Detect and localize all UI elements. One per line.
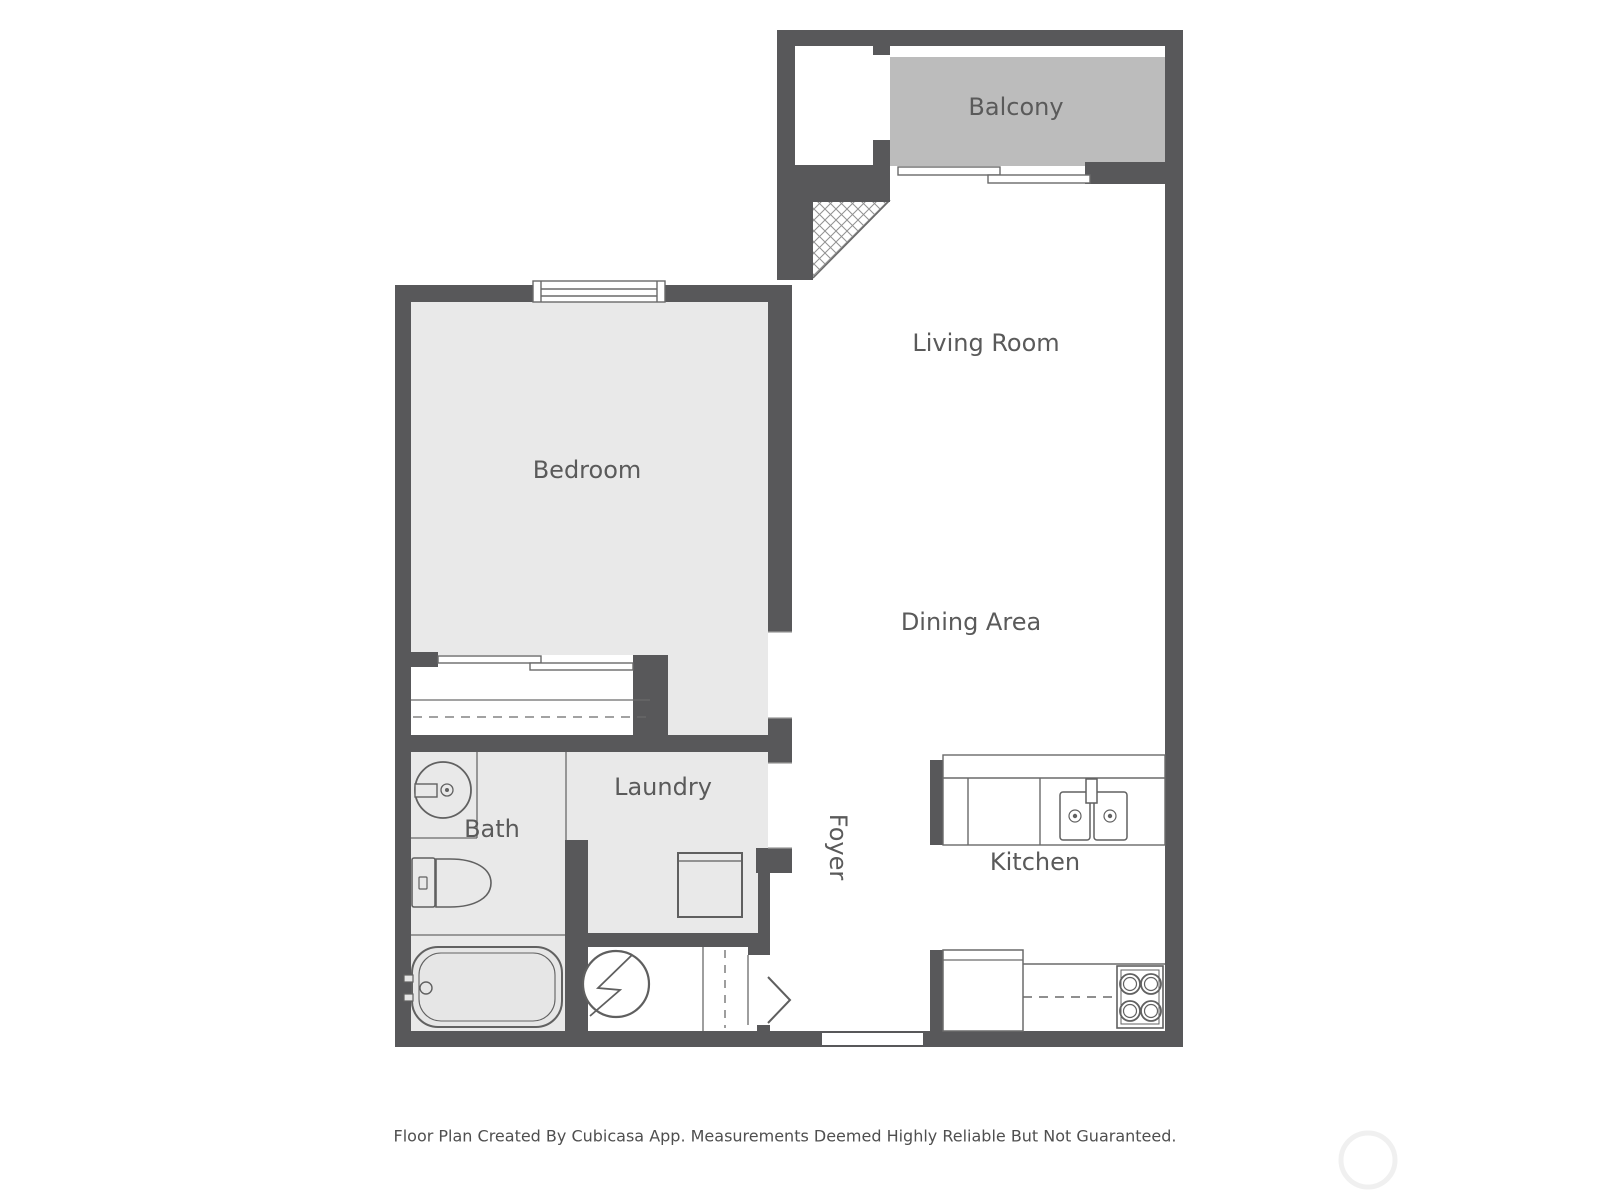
wall-segment (633, 655, 668, 735)
refrigerator (943, 950, 1023, 1031)
room-label-bedroom: Bedroom (533, 456, 642, 484)
wall-segment (1165, 30, 1183, 1047)
wall-segment (777, 165, 890, 202)
watermark-circle (1341, 1133, 1395, 1187)
kitchen-counter-top (943, 755, 1165, 845)
room-label-kitchen: Kitchen (990, 848, 1080, 876)
foyer-closet (703, 947, 748, 1031)
bedroom-window (533, 281, 665, 302)
room-label-bath: Bath (464, 815, 520, 843)
floor-plan-page: Balcony Living Room Bedroom Dining Area … (0, 0, 1600, 1200)
wall-segment (768, 302, 792, 632)
wall-segment (777, 30, 795, 170)
room-label-balcony: Balcony (968, 93, 1063, 121)
wall-segment (395, 285, 533, 302)
floor-plan-canvas: Balcony Living Room Bedroom Dining Area … (0, 0, 1600, 1200)
wall-segment (873, 46, 890, 55)
bathroom-sink (415, 762, 471, 818)
bathtub (404, 947, 562, 1027)
entry-door-swing (768, 977, 790, 1023)
room-label-laundry: Laundry (614, 773, 712, 801)
wall-segment (930, 760, 943, 845)
toilet (412, 858, 491, 907)
closet-lines (411, 700, 650, 717)
wall-segment (665, 285, 792, 302)
wall-segment (411, 652, 438, 667)
wall-segment (873, 140, 890, 167)
wall-segment (777, 30, 1183, 46)
wall-segment (395, 285, 411, 1047)
balcony-sliding-door (898, 167, 1090, 183)
wall-segment (395, 1031, 1183, 1047)
footer-disclaimer: Floor Plan Created By Cubicasa App. Meas… (394, 1127, 1177, 1146)
wall-segment (395, 735, 792, 752)
wall-segment (748, 947, 770, 955)
room-label-foyer: Foyer (824, 814, 852, 881)
room-label-dining-area: Dining Area (901, 608, 1041, 636)
entry-door-opening (822, 1033, 923, 1045)
wall-segment (930, 950, 943, 1031)
stove-4-burner (1117, 966, 1163, 1028)
wall-segment (565, 840, 588, 1031)
closet-sliding-door (438, 656, 633, 670)
water-heater (583, 951, 649, 1017)
washer (678, 853, 742, 917)
wall-segment (757, 1025, 770, 1033)
room-bedroom-floor-extension (668, 655, 768, 735)
room-label-living-room: Living Room (912, 329, 1059, 357)
wall-segment (756, 848, 792, 873)
wall-segment (1085, 162, 1165, 184)
wall-segment (777, 200, 813, 280)
wall-segment (588, 933, 770, 947)
